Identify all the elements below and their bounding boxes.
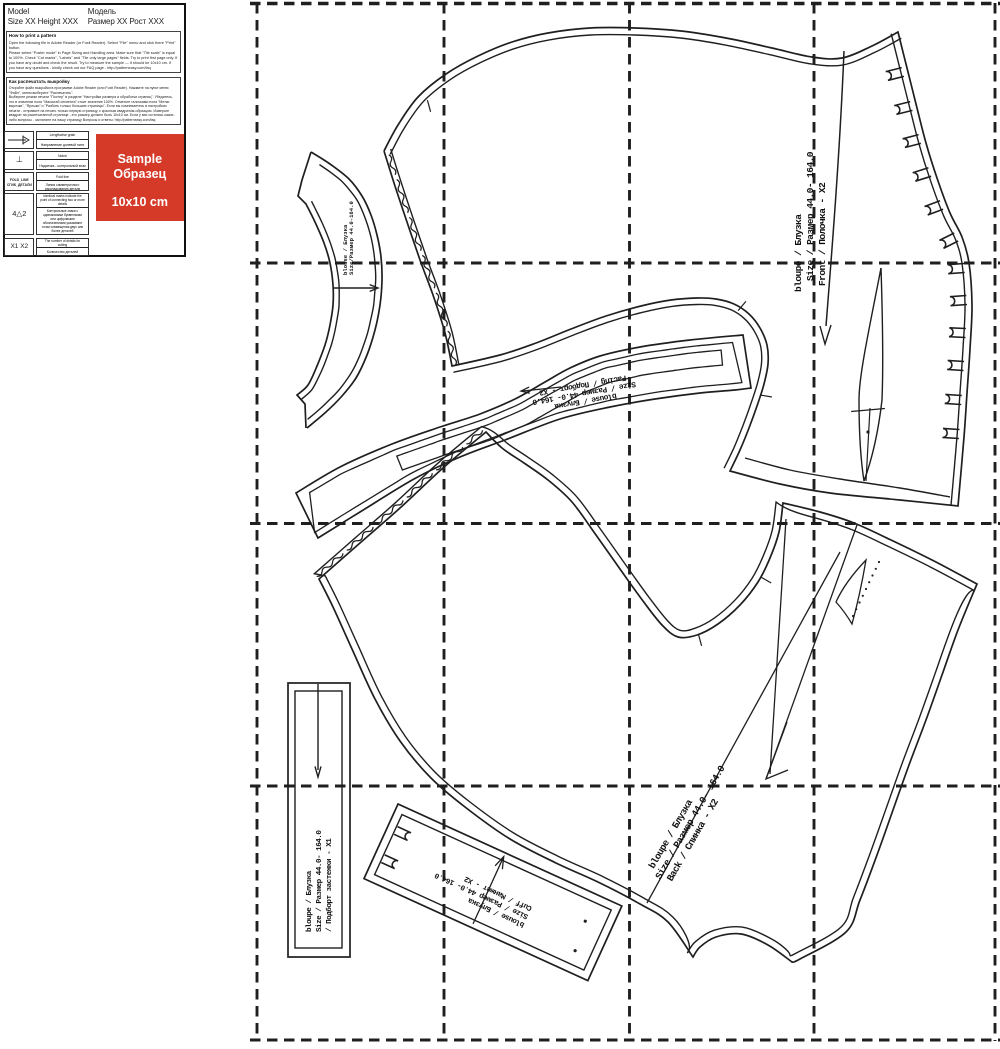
svg-text:bloupe / Блузка: bloupe / Блузка: [306, 870, 314, 932]
svg-text:Front / Полочка - X2: Front / Полочка - X2: [817, 182, 828, 286]
svg-text:Size / Размер 44.0- 164.0: Size / Размер 44.0- 164.0: [805, 151, 816, 281]
svg-text:Size/Размер 44.0-164.0: Size/Размер 44.0-164.0: [348, 201, 355, 275]
svg-text:/ Подборт застежки - X1: / Подборт застежки - X1: [325, 838, 334, 932]
svg-text:Size / Размер 44.0- 164.0: Size / Размер 44.0- 164.0: [433, 870, 529, 920]
svg-text:Size / Размер 44.0- 164.0: Size / Размер 44.0- 164.0: [653, 763, 727, 881]
svg-text:bloupe / Блузка: bloupe / Блузка: [793, 214, 804, 292]
svg-text:Size / Размер 44.0- 164.0: Size / Размер 44.0- 164.0: [316, 830, 324, 932]
